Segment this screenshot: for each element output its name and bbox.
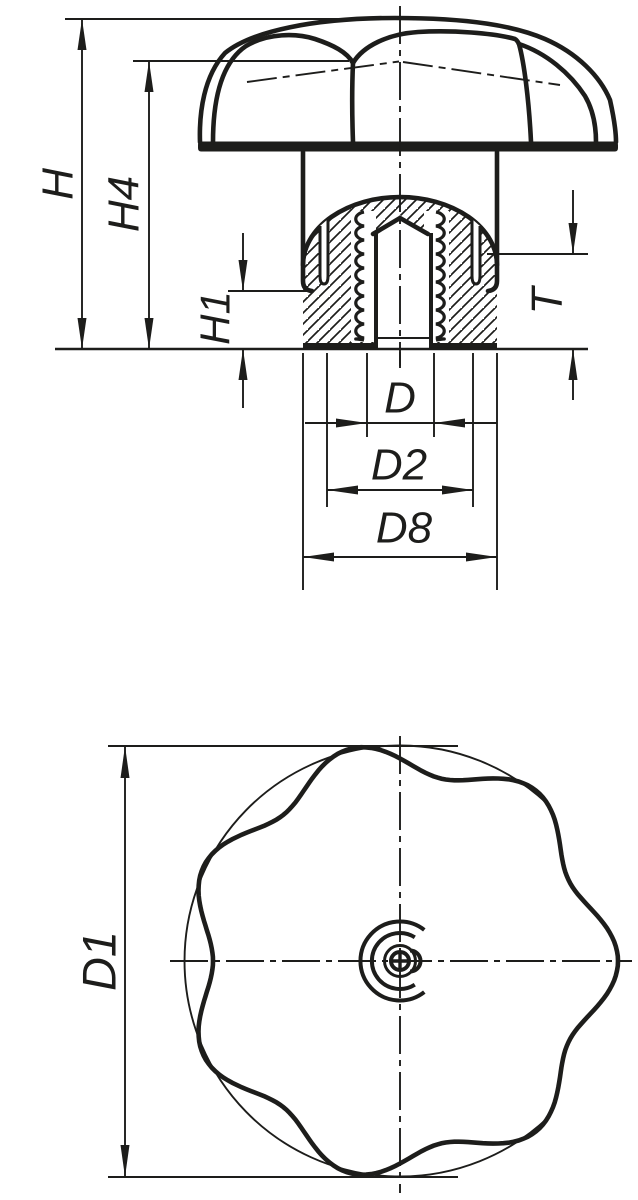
cap-center-lobe-curve <box>353 31 519 63</box>
dimension-H1: H1 <box>192 233 308 408</box>
left-slot <box>320 219 328 284</box>
t-label: T <box>522 284 571 314</box>
d1-label: D1 <box>72 931 125 991</box>
dimension-D8: D8 <box>303 503 497 561</box>
h1-label: H1 <box>192 291 239 345</box>
section-view: H H4 H1 T <box>33 6 618 590</box>
d2-arrow-left <box>327 486 358 495</box>
cap-center-valley-left <box>352 63 353 142</box>
cap-right-valley <box>519 44 531 142</box>
dimension-T: T <box>487 190 588 400</box>
h-label: H <box>33 168 82 200</box>
dimension-D: D <box>305 373 497 427</box>
cap-centerline-chevron <box>247 62 560 86</box>
t-arrow-top <box>569 223 578 254</box>
h1-arrow-bottom <box>239 349 248 380</box>
dimension-D2: D2 <box>327 440 473 494</box>
technical-drawing: H H4 H1 T <box>0 0 638 1200</box>
cap-left-lobe-curve <box>213 35 353 142</box>
d1-arrow-top <box>121 746 130 778</box>
center-hub-detail <box>360 921 424 1000</box>
t-arrow-bottom <box>569 349 578 380</box>
d8-arrow-left <box>303 553 334 562</box>
h4-arrow-top <box>145 61 154 92</box>
h-arrow-bottom <box>78 318 87 349</box>
bore <box>376 232 431 349</box>
d-arrow-left <box>336 419 367 428</box>
cap-bottom-bar <box>198 142 618 152</box>
h4-label: H4 <box>99 176 148 232</box>
d-label: D <box>384 373 416 422</box>
d8-label: D8 <box>376 503 433 552</box>
h1-arrow-top <box>239 260 248 291</box>
dimension-D-block: D D2 D8 <box>303 352 497 590</box>
h4-arrow-bottom <box>145 318 154 349</box>
d-arrow-right <box>434 419 465 428</box>
h-arrow-top <box>78 19 87 50</box>
right-slot <box>472 219 480 284</box>
d1-arrow-bottom <box>121 1145 130 1177</box>
knob-cap-section <box>198 18 618 152</box>
d2-arrow-right <box>442 486 473 495</box>
d8-arrow-right <box>466 553 497 562</box>
d2-label: D2 <box>371 440 427 489</box>
technical-drawing-page: H H4 H1 T <box>0 0 638 1200</box>
bottom-view: D1 <box>72 736 632 1193</box>
